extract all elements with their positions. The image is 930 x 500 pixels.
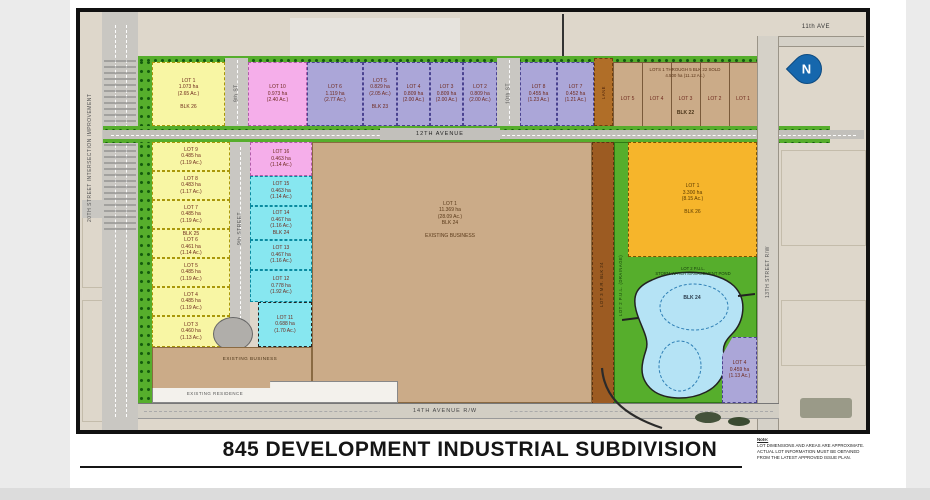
lot-label: LOT 7 0.485 ha (1.19 Ac.) — [180, 205, 201, 225]
lot-blk25-9: LOT 9 0.485 ha (1.19 Ac.) — [152, 142, 230, 171]
lot-label: LOT 6 1.119 ha (2.77 Ac.) — [324, 84, 345, 104]
lot-label: LOT 15 0.463 ha (1.14 Ac.) — [270, 181, 291, 201]
lot-cyan-15: LOT 15 0.463 ha (1.14 Ac.) — [250, 176, 312, 206]
lot-cyan-13: LOT 13 0.467 ha (1.16 Ac.) — [250, 240, 312, 270]
lot-label: LOT 10 0.973 ha (2.40 Ac.) — [267, 84, 288, 104]
tree-blob — [695, 412, 721, 423]
lot-purple-8: LOT 8 0.455 ha (1.23 Ac.) — [520, 62, 557, 126]
road-label-10th-st: 10th ST — [503, 70, 514, 116]
lot-label: LOT 7 0.452 ha (1.21 Ac.) — [565, 84, 586, 104]
lot-label: LOT 2 0.809 ha (2.00 Ac.) — [469, 84, 490, 104]
page-title: 845 DEVELOPMENT INDUSTRIAL SUBDIVISION — [90, 436, 850, 464]
photo-blotch — [290, 18, 460, 58]
lot-label: LOT 14 0.467 ha (1.16 Ac.) BLK 24 — [270, 210, 291, 236]
rail-line — [590, 360, 680, 430]
lot-blk25-8: LOT 8 0.483 ha (1.17 Ac.) — [152, 171, 230, 200]
lot-label: BLK 25 LOT 6 0.461 ha (1.14 Ac.) — [180, 231, 201, 257]
lot-label: LOT 8 0.455 ha (1.23 Ac.) — [528, 84, 549, 104]
lot-label: LOT 1 11.369 ha (28.09 Ac.) BLK 24 EXIST… — [425, 201, 475, 240]
tree-blob — [728, 417, 750, 426]
lot-label: LOT 4 0.485 ha (1.19 Ac.) — [180, 292, 201, 312]
intersection-improvement-hatch — [104, 58, 136, 230]
lot-label: LOT 13 0.467 ha (1.16 Ac.) — [270, 245, 291, 265]
existing-residence-label: EXISTING RESIDENCE — [160, 391, 270, 397]
lot-label: LOT 3 0.809 ha (2.00 Ac.) — [436, 84, 457, 104]
cul-de-sac — [213, 317, 253, 351]
lot-pink-10: LOT 10 0.973 ha (2.40 Ac.) — [248, 62, 307, 126]
lot-orange-blk26: LOT 1 3.300 ha (8.15 Ac.) BLK 26 — [628, 142, 757, 257]
lot-blk25-5: LOT 5 0.485 ha (1.19 Ac.) — [152, 258, 230, 287]
lot-label: LOT 3 0.460 ha (1.13 Ac.) — [180, 322, 201, 342]
lot-blk25-6: BLK 25 LOT 6 0.461 ha (1.14 Ac.) — [152, 229, 230, 258]
green-verge-west-lower — [138, 142, 152, 403]
bottom-margin — [0, 488, 930, 500]
lane-label: LANE — [598, 72, 609, 114]
plat-map-page: 20TH STREET INTERSECTION IMPROVEMENT LOT… — [0, 0, 930, 500]
road-label-20th-street: 20TH STREET INTERSECTION IMPROVEMENT — [84, 58, 96, 258]
lot-purple-3: LOT 3 0.809 ha (2.00 Ac.) — [430, 62, 463, 126]
pond-blk-label: BLK 24 — [672, 295, 712, 301]
road-label-9th-st-upper: 9th ST — [231, 70, 242, 116]
note-block: Note: LOT DIMENSIONS AND AREAS ARE APPRO… — [757, 437, 907, 462]
pond-label: LOT 2 P.U.L. STORM WATER MANAGEMENT POND — [634, 266, 752, 277]
lot-purple-5: LOT 5 0.829 ha (2.05 Ac.) BLK 23 — [363, 62, 397, 126]
lot-label: LOT 12 0.778 ha (1.92 Ac.) — [270, 276, 291, 296]
blk22-header: LOTS 1 THROUGH 5 BLK 22 SOLD 4.500 ha (1… — [617, 67, 753, 78]
right-margin — [906, 0, 930, 500]
note-heading: Note: — [757, 437, 768, 442]
lot-blk25-4: LOT 4 0.485 ha (1.19 Ac.) — [152, 287, 230, 316]
road-11th-ave — [779, 36, 864, 47]
blk22-lot5: LOT 5 — [613, 96, 642, 103]
lot-purple-4: LOT 4 0.809 ha (2.00 Ac.) — [397, 62, 430, 126]
blk22-lot4: LOT 4 — [642, 96, 671, 103]
lot-label: LOT 1 3.300 ha (8.15 Ac.) BLK 26 — [682, 183, 703, 216]
lot-label: LOT 5 0.485 ha (1.19 Ac.) — [180, 263, 201, 283]
lot-big-blk24 — [312, 142, 592, 403]
lot-pink-16: LOT 16 0.463 ha (1.14 Ac.) — [250, 142, 312, 176]
blk22-lot1: LOT 1 — [729, 96, 757, 103]
mr-strip-label: LOT 3 M.R. BLK 24 — [596, 235, 607, 335]
lot-label: LOT 8 0.483 ha (1.17 Ac.) — [180, 176, 201, 196]
lot-cyan-11: LOT 11 0.688 ha (1.70 Ac.) — [258, 302, 312, 347]
existing-business-label: EXISTING BUSINESS — [190, 356, 310, 362]
road-label-9th-street: 9th STREET — [234, 190, 246, 266]
photo-parcel — [781, 150, 866, 246]
lot-label: LOT 9 0.485 ha (1.19 Ac.) — [180, 147, 201, 167]
lot-label: LOT 11 0.688 ha (1.70 Ac.) — [274, 315, 295, 335]
road-label-14th-avenue: 14TH AVENUE R/W — [380, 405, 510, 417]
road-label-11th-ave: 11th AVE — [786, 24, 846, 32]
lot-label: LOT 5 0.829 ha (2.05 Ac.) BLK 23 — [369, 78, 390, 111]
compass-letter: N — [802, 61, 811, 76]
lot-cyan-14: LOT 14 0.467 ha (1.16 Ac.) BLK 24 — [250, 206, 312, 240]
note-body: LOT DIMENSIONS AND AREAS ARE APPROXIMATE… — [757, 443, 907, 461]
pond-culvert-west — [622, 318, 638, 320]
blk22-lot2: LOT 2 — [700, 96, 729, 103]
road-label-12th-avenue: 12TH AVENUE — [380, 128, 500, 140]
lot-cyan-12: LOT 12 0.778 ha (1.92 Ac.) — [250, 270, 312, 302]
blk22-lot3: LOT 3 — [671, 96, 700, 103]
blk22-label: BLK 22 — [671, 110, 700, 116]
lot-blk25-7: LOT 7 0.485 ha (1.19 Ac.) — [152, 200, 230, 229]
lot-label: LOT 16 0.463 ha (1.14 Ac.) — [270, 149, 291, 169]
lot-label: LOT 1 1.073 ha (2.65 Ac.) BLK 26 — [178, 78, 199, 111]
photo-blotch — [800, 398, 852, 418]
title-underline — [80, 466, 742, 468]
green-verge-west-upper — [138, 58, 152, 126]
lot-label: LOT 4 0.459 ha (1.13 Ac.) — [729, 360, 750, 380]
lot-purple-small-4: LOT 4 0.459 ha (1.13 Ac.) — [722, 337, 757, 403]
lot-purple-2: LOT 2 0.809 ha (2.00 Ac.) — [463, 62, 497, 126]
big-blk24-label: LOT 1 11.369 ha (28.09 Ac.) BLK 24 EXIST… — [380, 190, 520, 250]
photo-parcel — [82, 300, 104, 422]
photo-parcel — [781, 300, 866, 366]
lot-purple-6: LOT 6 1.119 ha (2.77 Ac.) — [307, 62, 363, 126]
lot-yellow-blk26: LOT 1 1.073 ha (2.65 Ac.) BLK 26 — [152, 62, 225, 126]
road-label-13th-street: 13TH STREET R/W — [762, 225, 774, 320]
lot-purple-7: LOT 7 0.452 ha (1.21 Ac.) — [557, 62, 594, 126]
lot-label: LOT 4 0.809 ha (2.00 Ac.) — [403, 84, 424, 104]
section-line — [562, 14, 564, 62]
left-margin — [0, 0, 70, 500]
